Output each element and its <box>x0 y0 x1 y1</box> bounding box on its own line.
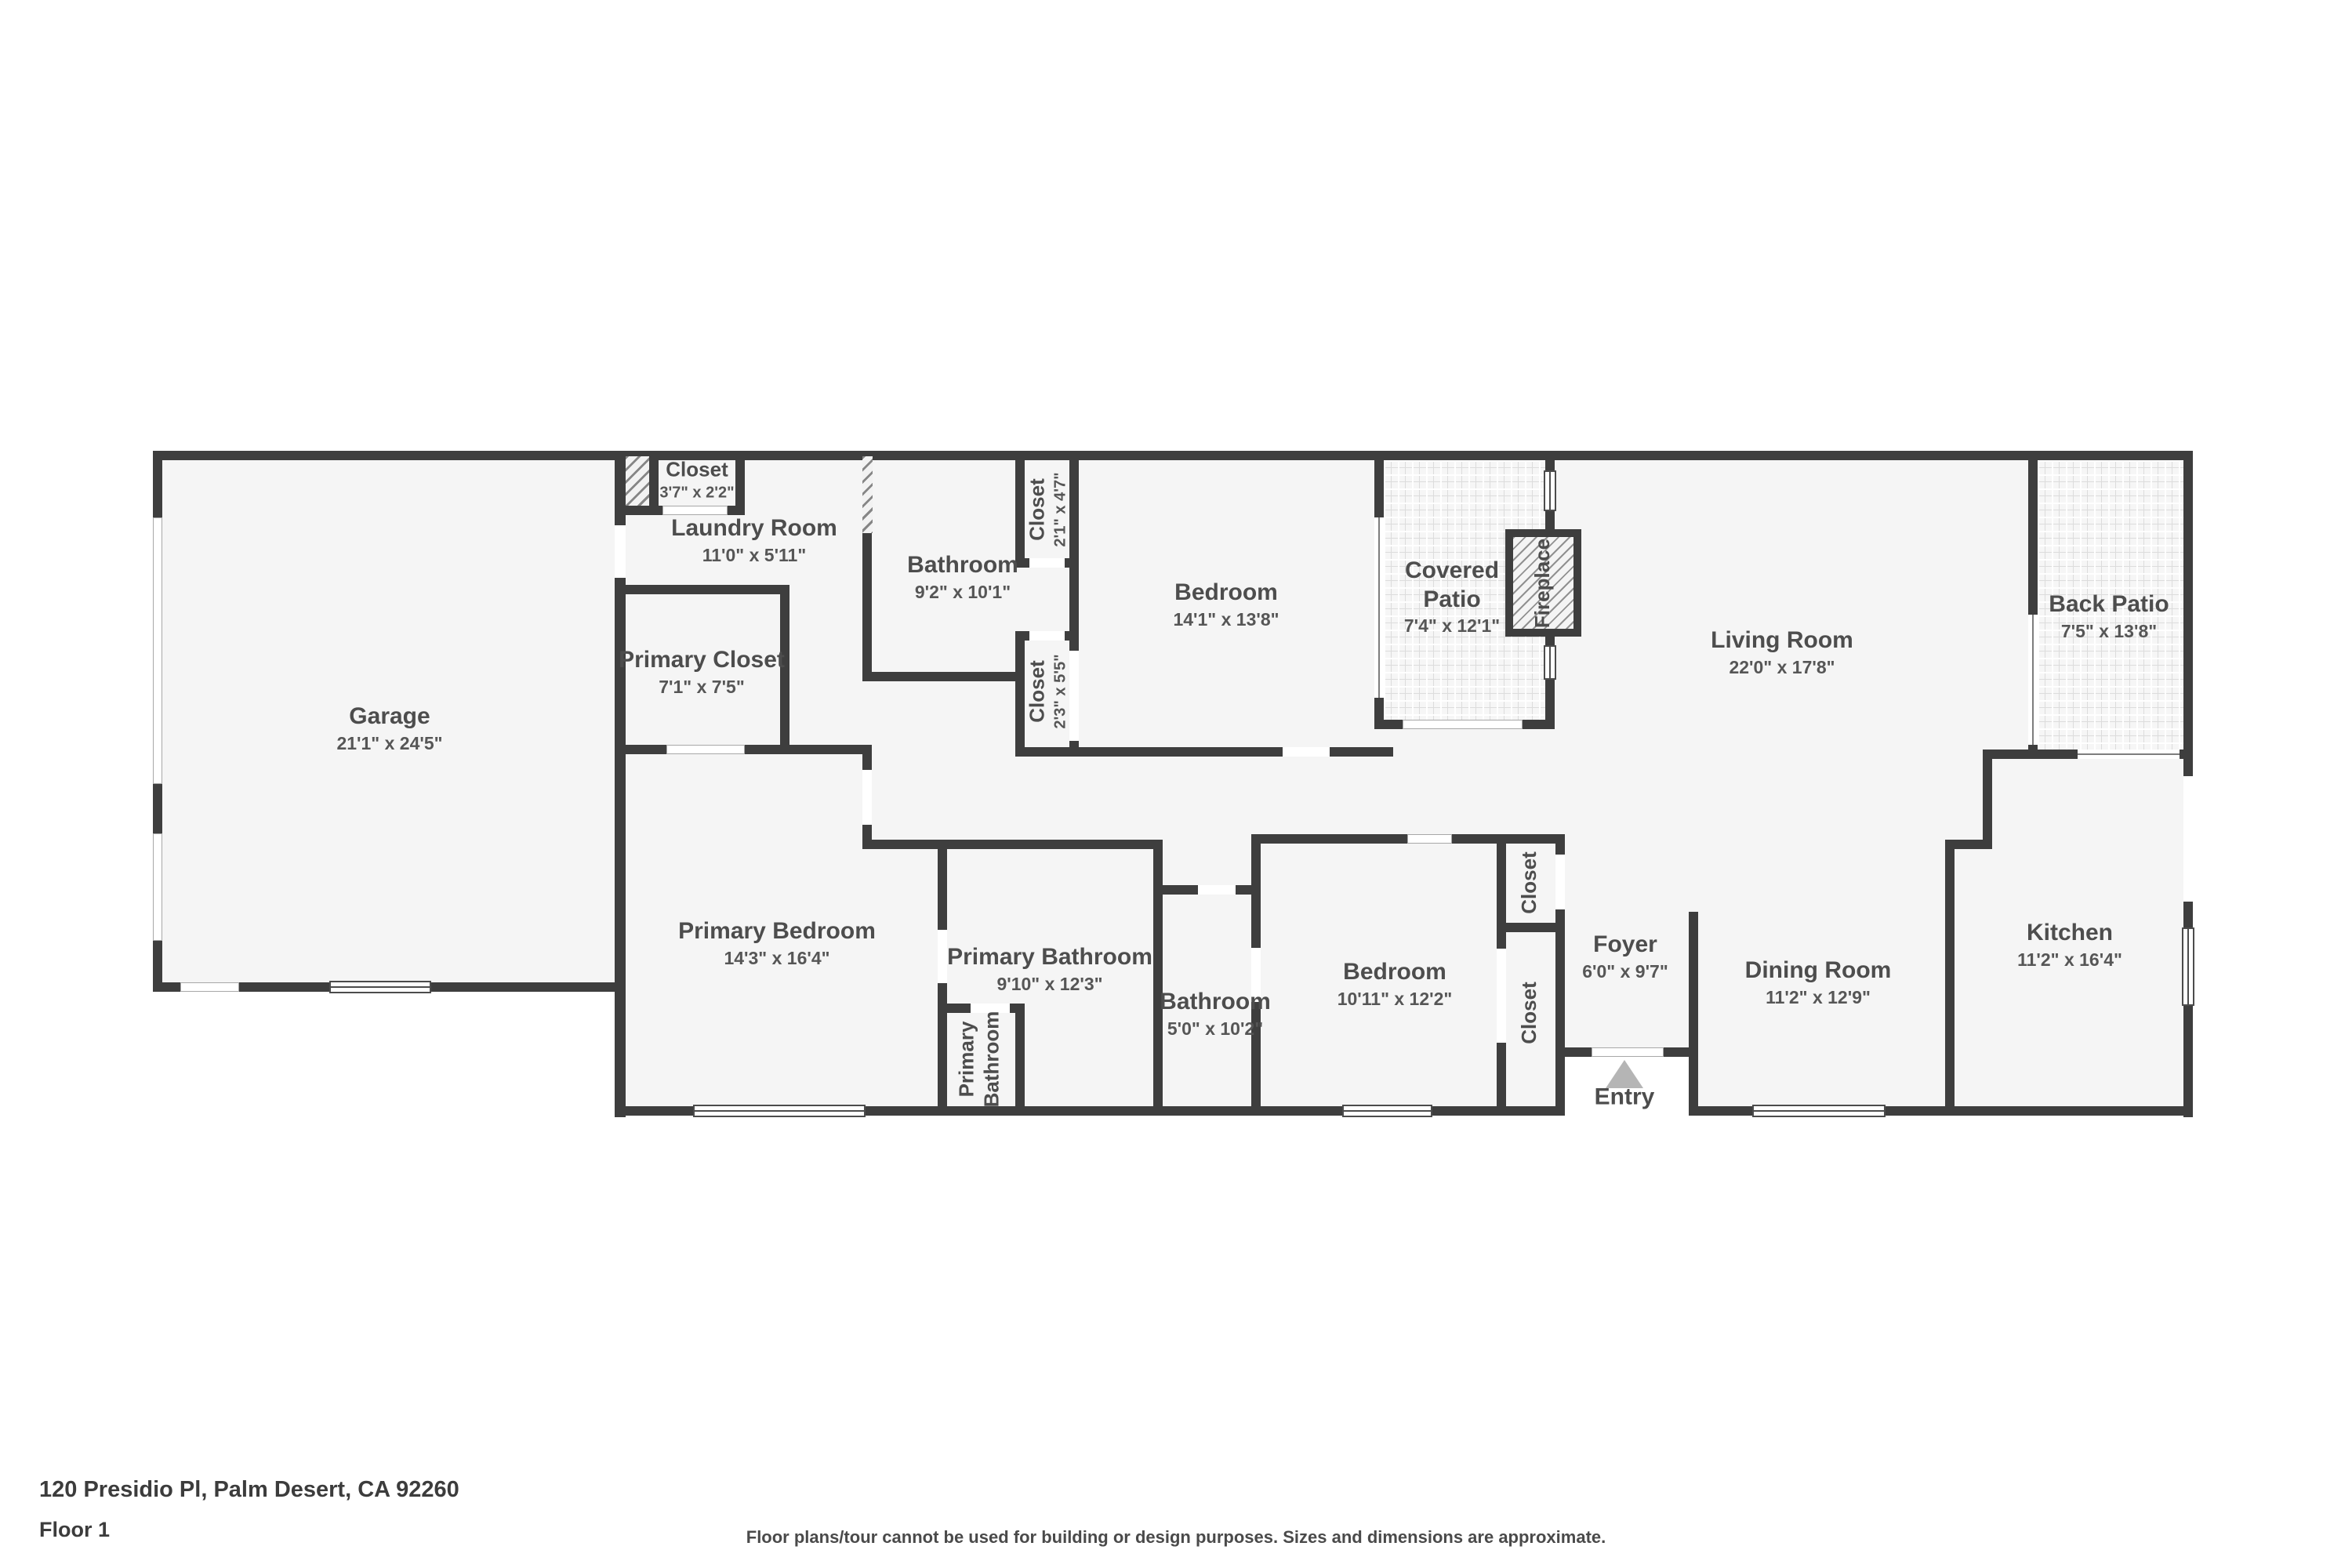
sliding-door-living-back-patio <box>2028 615 2038 745</box>
window-patio-wall-lower <box>1544 645 1556 680</box>
window-patio-wall-upper <box>1544 470 1556 511</box>
wall-closet1-right <box>735 460 745 515</box>
room-name: Closet <box>1517 851 1542 913</box>
door-opening-closet23 <box>1029 631 1065 641</box>
room-name: Bedroom <box>1338 958 1453 987</box>
room-dims: 11'0" x 5'11" <box>671 543 837 568</box>
hatch-bathroom-wall <box>862 456 873 533</box>
door-opening-bedroom1 <box>1283 747 1330 757</box>
room-label-back-patio: Back Patio 7'5" x 13'8" <box>2049 590 2169 644</box>
room-label-entry: Entry <box>1595 1083 1655 1112</box>
door-opening-garage-laundry <box>615 525 626 578</box>
room-label-primary-closet: Primary Closet 7'1" x 7'5" <box>619 646 785 699</box>
room-dims: 3'7" x 2'2" <box>659 482 734 503</box>
room-dims: 2'3" x 5'5" <box>1050 654 1071 728</box>
room-label-closet-top: Closet 3'7" x 2'2" <box>659 458 734 504</box>
wall-laundry-bottom <box>615 585 789 594</box>
opening-covered-patio <box>1403 720 1523 729</box>
room-label-kitchen: Kitchen 11'2" x 16'4" <box>2017 919 2122 972</box>
wall-dining-left <box>1689 912 1698 1116</box>
window-kitchen-right <box>2182 927 2194 1006</box>
room-dims: 14'1" x 13'8" <box>1173 608 1279 632</box>
room-dims: 6'0" x 9'7" <box>1582 960 1668 984</box>
wall-closet1-left <box>649 460 659 506</box>
hatch-closet-wall <box>626 456 649 510</box>
room-label-fireplace: Fireplace <box>1530 539 1555 628</box>
door-opening-closet-b <box>1497 949 1506 1043</box>
window-garage-bottom <box>180 982 239 992</box>
room-dims: 7'5" x 13'8" <box>2049 619 2169 644</box>
wall-primary-bath-top <box>862 840 1163 849</box>
room-dims: 9'2" x 10'1" <box>907 580 1018 604</box>
room-dims: 11'2" x 16'4" <box>2017 948 2122 972</box>
wall-bedroom1-bottom <box>1015 747 1393 757</box>
room-dims: 11'2" x 12'9" <box>1745 985 1892 1010</box>
room-name: Closet <box>1517 982 1542 1044</box>
room-name: Closet <box>1025 472 1051 546</box>
wall-bathroom1-bottom <box>862 672 1015 681</box>
room-label-primary-bedroom: Primary Bedroom 14'3" x 16'4" <box>678 917 876 971</box>
wall-closet-divider <box>1497 923 1565 932</box>
room-dims: 10'11" x 12'2" <box>1338 987 1453 1011</box>
wall-kitchen-left-upper <box>1983 750 1992 849</box>
window-garage-left-1 <box>153 517 162 784</box>
room-label-bedroom-top: Bedroom 14'1" x 13'8" <box>1173 579 1279 632</box>
door-opening-entry <box>1592 1047 1664 1057</box>
room-label-closet-a: Closet <box>1517 851 1542 913</box>
room-name: Primary Bathroom <box>954 1008 1004 1110</box>
opening-kitchen-right <box>2183 776 2193 902</box>
room-name: Primary Closet <box>619 646 785 675</box>
room-dims: 5'0" x 10'2" <box>1160 1017 1271 1041</box>
room-name: Back Patio <box>2049 590 2169 619</box>
window-bedroom2-top <box>1407 834 1452 844</box>
room-name: Closet <box>659 458 734 483</box>
room-label-closet-b: Closet <box>1517 982 1542 1044</box>
room-name: Foyer <box>1582 931 1668 960</box>
garage-door <box>329 981 431 993</box>
window-garage-left-2 <box>153 833 162 941</box>
room-name: Dining Room <box>1745 956 1892 985</box>
room-label-garage: Garage 21'1" x 24'5" <box>336 702 442 756</box>
room-label-bedroom-small: Bedroom 10'11" x 12'2" <box>1338 958 1453 1011</box>
floor-plan: Garage 21'1" x 24'5" Closet 3'7" x 2'2" … <box>0 0 2352 1568</box>
room-label-laundry: Laundry Room 11'0" x 5'11" <box>671 514 837 568</box>
room-label-dining: Dining Room 11'2" x 12'9" <box>1745 956 1892 1010</box>
wall-alcove-left <box>1555 1057 1565 1116</box>
sliding-door-bedroom1-patio <box>1374 517 1384 698</box>
door-opening-closet-a <box>1555 855 1565 909</box>
room-label-living: Living Room 22'0" x 17'8" <box>1711 626 1853 680</box>
room-label-bathroom-top: Bathroom 9'2" x 10'1" <box>907 551 1018 604</box>
room-dims: 9'10" x 12'3" <box>947 972 1152 996</box>
room-label-covered-patio: Covered Patio 7'4" x 12'1" <box>1389 557 1515 638</box>
room-label-foyer: Foyer 6'0" x 9'7" <box>1582 931 1668 984</box>
window-primary-bedroom <box>693 1105 866 1117</box>
room-name: Living Room <box>1711 626 1853 655</box>
door-opening-primary-closet <box>666 745 745 754</box>
window-bedroom2 <box>1342 1105 1432 1117</box>
room-name: Kitchen <box>2017 919 2122 948</box>
door-opening-primary-bedroom <box>862 770 872 825</box>
door-opening-primary-bath <box>938 930 947 983</box>
room-name: Bathroom <box>1160 988 1271 1017</box>
room-label-closet-21: Closet 2'1" x 4'7" <box>1025 472 1072 546</box>
room-name: Closet <box>1025 654 1051 728</box>
room-name: Covered Patio <box>1389 557 1515 614</box>
room-name: Primary Bedroom <box>678 917 876 946</box>
room-name: Primary Bathroom <box>947 943 1152 972</box>
room-label-primary-bathroom: Primary Bathroom 9'10" x 12'3" <box>947 943 1152 996</box>
wall-top <box>153 451 2193 460</box>
room-dims: 22'0" x 17'8" <box>1711 655 1853 680</box>
room-name: Bathroom <box>907 551 1018 580</box>
door-opening-bathroom2 <box>1198 885 1236 895</box>
wall-closet23-left <box>1015 631 1025 757</box>
room-dims: 7'4" x 12'1" <box>1389 614 1515 638</box>
disclaimer-text: Floor plans/tour cannot be used for buil… <box>0 1527 2352 1548</box>
room-dims: 7'1" x 7'5" <box>619 675 785 699</box>
room-name: Laundry Room <box>671 514 837 543</box>
room-label-bathroom-small: Bathroom 5'0" x 10'2" <box>1160 988 1271 1041</box>
room-name: Fireplace <box>1530 539 1555 628</box>
sliding-door-kitchen-back-patio <box>2078 750 2180 759</box>
room-dims: 14'3" x 16'4" <box>678 946 876 971</box>
window-dining <box>1752 1105 1886 1117</box>
room-dims: 2'1" x 4'7" <box>1050 472 1071 546</box>
wall-kitchen-left-lower <box>1945 840 1955 1116</box>
room-label-closet-23: Closet 2'3" x 5'5" <box>1025 654 1072 728</box>
property-address: 120 Presidio Pl, Palm Desert, CA 92260 <box>39 1477 459 1503</box>
room-label-primary-wc: Primary Bathroom <box>954 1008 1004 1110</box>
wall-wc-right <box>1015 1004 1025 1116</box>
room-dims: 21'1" x 24'5" <box>336 731 442 756</box>
room-name: Bedroom <box>1173 579 1279 608</box>
door-opening-closet21 <box>1029 558 1065 568</box>
room-name: Entry <box>1595 1083 1655 1112</box>
room-name: Garage <box>336 702 442 731</box>
